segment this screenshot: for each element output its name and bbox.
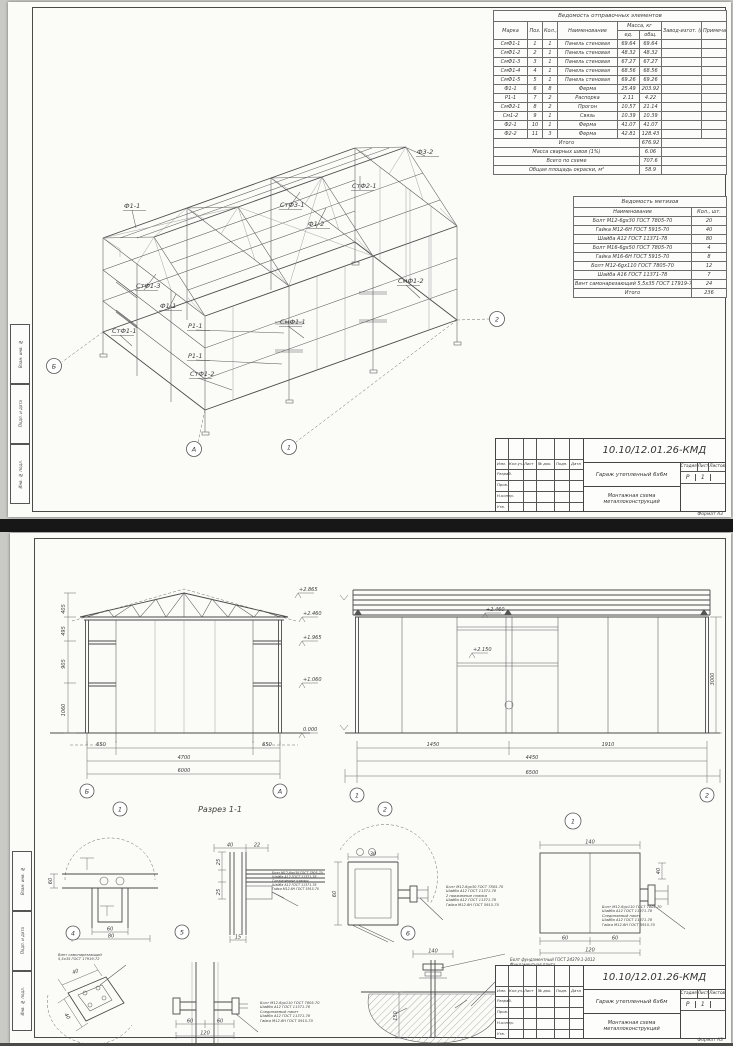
- svg-text:+1.965: +1.965: [303, 635, 322, 641]
- spec-table-row: СмФ1-221Панель стеновая48.3248.32: [494, 49, 727, 58]
- hardware-table: Ведомость метизов Наименование Кол., шт.…: [573, 196, 727, 298]
- svg-text:80: 80: [108, 934, 114, 940]
- hardware-total-row: Итого236: [574, 289, 727, 298]
- detail-1-notes: Болт М12-6gх110 ГОСТ 7805-70Шайба А12 ГО…: [602, 905, 707, 927]
- note-line: Гайка М12-6Н ГОСТ 5915-70: [602, 923, 707, 927]
- svg-text:1450: 1450: [427, 742, 440, 748]
- svg-text:15: 15: [235, 935, 241, 941]
- note-line: Гайка М12-6Н ГОСТ 5915-70: [446, 903, 534, 907]
- leader-line: [288, 326, 304, 338]
- svg-text:650: 650: [262, 742, 272, 748]
- svg-text:5: 5: [180, 929, 184, 937]
- hardware-table-row: Болт М12-6gх30 ГОСТ 7805-7020: [574, 217, 727, 226]
- element-mark-label: Ф1-1: [124, 202, 140, 210]
- section-view-1-1: 405 495 905 1060 +2.865 +2.460 +1.965 +1…: [50, 587, 322, 816]
- element-mark-label: СмФ1-1: [280, 318, 306, 326]
- svg-text:+2.150: +2.150: [473, 647, 492, 653]
- drawing-name: Монтажная схема металлоконструкций: [584, 487, 680, 511]
- hardware-table-row: Гайка М16-6Н ГОСТ 5915-708: [574, 253, 727, 262]
- col-mass-ed: ед.: [618, 31, 640, 40]
- svg-text:405: 405: [61, 604, 67, 614]
- svg-text:30: 30: [370, 852, 376, 858]
- svg-text:0.000: 0.000: [303, 727, 317, 733]
- hardware-table-row: Гайка М12-6Н ГОСТ 5915-7040: [574, 226, 727, 235]
- tb-podp: Подп.: [556, 461, 568, 466]
- axis-bubble-label: 1: [287, 444, 291, 452]
- format-note: Формат А3: [697, 512, 723, 517]
- svg-text:120: 120: [200, 1031, 210, 1037]
- side-elevation-view: +2.460 +2.150 3000 1450 1910 4450 6500 1…: [340, 590, 722, 816]
- sheet-number: 1: [696, 474, 711, 481]
- spec-summary-row: Всего по схеме707.6: [494, 157, 727, 166]
- svg-text:40: 40: [72, 968, 80, 976]
- document-number: 10.10/12.01.26-КМД: [584, 439, 725, 463]
- tb-role-prov: Пров.: [497, 482, 508, 487]
- spec-table-row: Ф2-1101Ферма41.0741.07: [494, 121, 727, 130]
- svg-text:+2.460: +2.460: [486, 607, 505, 613]
- svg-text:А: А: [277, 788, 282, 796]
- spec-table-row: СмФ1-441Панель стеновая68.5668.56: [494, 67, 727, 76]
- title-block-sheet2: Изм. Кол.уч. Лист № док. Подп. Дата Разр…: [495, 965, 726, 1039]
- axis-bubble-label: 2: [495, 316, 499, 324]
- sheet-label: Лист: [698, 463, 710, 471]
- svg-text:120: 120: [585, 948, 595, 954]
- hardware-table-title: Ведомость метизов: [574, 197, 727, 208]
- col-mass-total: общ.: [640, 31, 662, 40]
- spec-table-title: Ведомость отправочных элементов: [494, 11, 727, 22]
- hardware-table-row: Винт самонарезающий 5,5х35 ГОСТ 17919-72…: [574, 280, 727, 289]
- detail-5-notes: Болт М12-6gх30 ГОСТ 7805-70Шайба А12 ГОС…: [272, 871, 328, 891]
- svg-text:1910: 1910: [602, 742, 615, 748]
- element-mark-label: Ф3-2: [417, 148, 433, 156]
- sheet-2-sections-details: 405 495 905 1060 +2.865 +2.460 +1.965 +1…: [10, 533, 731, 1043]
- element-mark-label: Ф1-1: [160, 302, 176, 310]
- svg-text:150: 150: [393, 1011, 399, 1021]
- detail-anchor-bolt: 140 150: [361, 949, 507, 1044]
- svg-text:60: 60: [187, 1019, 193, 1025]
- svg-text:60: 60: [217, 1019, 223, 1025]
- element-mark-label: СмФ1-2: [398, 277, 424, 285]
- detail-bolt-package: 60 60 120: [173, 962, 258, 1043]
- svg-text:140: 140: [585, 840, 595, 846]
- element-mark-label: Р1-1: [188, 352, 203, 360]
- svg-text:6: 6: [406, 930, 410, 938]
- margin-stamps-sheet2: Взам. инв. № Подп. и дата Инв. № подл.: [12, 851, 32, 1031]
- svg-text:Б: Б: [85, 788, 90, 796]
- axis-bubble-label: Б: [52, 363, 57, 371]
- spec-table-row: Р1-172Распорка2.114.22: [494, 94, 727, 103]
- col-marka: Марка: [494, 22, 528, 40]
- hardware-table-row: Шайба А12 ГОСТ 11371-7880: [574, 235, 727, 244]
- spec-table-row: СмФ2-182Прогон10.5721.14: [494, 103, 727, 112]
- hw-col-name: Наименование: [574, 208, 692, 217]
- svg-text:6500: 6500: [526, 770, 539, 776]
- svg-text:1: 1: [118, 806, 122, 814]
- leader-line: [198, 378, 232, 390]
- svg-text:+2.460: +2.460: [303, 611, 322, 617]
- tb-role-razrab: Разраб.: [497, 471, 512, 476]
- hardware-table-row: Болт М12-6gх110 ГОСТ 7805-7012: [574, 262, 727, 271]
- note-line: 5,5х35 ГОСТ 17919-72: [58, 957, 148, 961]
- svg-text:60: 60: [332, 891, 338, 897]
- elev-marks-left-view: +2.865 +2.460 +1.965 +1.060 0.000: [295, 587, 322, 738]
- spec-table-row: СмФ1-111Панель стеновая69.6469.64: [494, 40, 727, 49]
- title-block-sheet1: Изм. Кол.уч. Лист № док. Подп. Дата Разр…: [495, 438, 726, 512]
- hardware-table-row: Шайба А16 ГОСТ 11371-787: [574, 271, 727, 280]
- tb-list: Лист: [524, 461, 534, 466]
- svg-text:60: 60: [107, 927, 113, 933]
- sheet-divider: [0, 519, 733, 532]
- svg-text:2: 2: [705, 792, 709, 800]
- tb-koluch: Кол.уч.: [509, 461, 523, 466]
- drawing-name-2: Монтажная схема металлоконструкций: [584, 1014, 680, 1038]
- spec-table-row: Ф2-2113Ферма42.81128.43: [494, 130, 727, 139]
- col-name: Наименование: [558, 22, 618, 40]
- project-name: Гараж утепленный 6х6м: [584, 463, 680, 487]
- tb-role-utv: Утв.: [497, 504, 505, 509]
- sheets-label: Листов: [709, 463, 725, 471]
- stamp-inv: Инв. № подл.: [18, 460, 23, 488]
- detail-5: 40 22 25 25 15: [214, 843, 325, 944]
- svg-text:1060: 1060: [61, 704, 67, 717]
- detail-1: 140 60 60 120 40: [540, 840, 685, 957]
- stamp-podp: Подп. и дата: [18, 400, 23, 427]
- spec-summary-row: Масса сварных швов (1%)6.06: [494, 148, 727, 157]
- svg-text:22: 22: [254, 843, 260, 849]
- element-mark-label: СтФ1-2: [190, 370, 215, 378]
- stamp-vzam: Взам. инв. №: [18, 340, 23, 368]
- section-title: Разрез 1-1: [198, 805, 242, 814]
- element-mark-label: СтФ2-1: [352, 182, 377, 190]
- svg-text:1: 1: [571, 818, 575, 826]
- col-poz: Поз.: [528, 22, 543, 40]
- screw-detail-note: Винт самонарезающий5,5х35 ГОСТ 17919-72: [58, 953, 148, 962]
- hardware-table-row: Болт М16-6gх50 ГОСТ 7805-704: [574, 244, 727, 253]
- margin-stamps-sheet1: Взам. инв. № Подп. и дата Инв. № подл.: [10, 324, 30, 504]
- svg-text:4700: 4700: [178, 755, 191, 761]
- element-mark-label: СтФ1-1: [112, 327, 137, 335]
- element-mark-label: СтФ3-1: [280, 201, 305, 209]
- svg-text:495: 495: [61, 626, 67, 636]
- stage-label: Стадия: [681, 463, 698, 471]
- note-line: Гайка М12-6Н ГОСТ 5915-70: [260, 1019, 355, 1023]
- svg-text:40: 40: [227, 843, 233, 849]
- svg-text:40: 40: [656, 868, 662, 874]
- drawing-page: { "colors": { "sheet": "#fbfbf8", "line"…: [0, 0, 733, 1046]
- svg-text:60: 60: [562, 936, 568, 942]
- svg-text:4450: 4450: [526, 755, 539, 761]
- tb-data: Дата: [571, 461, 581, 466]
- col-note: Примечание: [702, 22, 727, 40]
- spec-summary-row: Итого676.92: [494, 139, 727, 148]
- shipping-elements-table: Ведомость отправочных элементов Марка По…: [493, 10, 727, 175]
- leader-line: [132, 210, 136, 228]
- svg-text:2: 2: [383, 806, 387, 814]
- spec-table-row: Ф1-168Ферма25.49203.92: [494, 85, 727, 94]
- svg-text:25: 25: [216, 889, 222, 895]
- spec-table-row: СмФ1-331Панель стеновая67.2767.27: [494, 58, 727, 67]
- svg-text:6000: 6000: [178, 768, 191, 774]
- svg-text:+1.060: +1.060: [303, 677, 322, 683]
- svg-text:60: 60: [48, 878, 54, 884]
- svg-text:+2.865: +2.865: [299, 587, 318, 593]
- svg-text:40: 40: [63, 1012, 72, 1021]
- svg-text:25: 25: [216, 859, 222, 865]
- element-mark-label: Р1-1: [188, 322, 203, 330]
- svg-text:4: 4: [71, 930, 75, 938]
- axis-bubble-label: А: [191, 446, 196, 454]
- hw-col-qty: Кол., шт.: [692, 208, 727, 217]
- spec-summary-row: Общая площадь окраски, м²58.9: [494, 166, 727, 175]
- svg-text:905: 905: [61, 659, 67, 669]
- title-block-revision-grid: Изм. Кол.уч. Лист № док. Подп. Дата Разр…: [496, 439, 584, 511]
- tb-dok: № док.: [538, 461, 552, 466]
- spec-table-row: СмФ1-551Панель стеновая69.2669.26: [494, 76, 727, 85]
- detail-6-notes: Болт М12-6gх30 ГОСТ 7805-70Шайба А12 ГОС…: [446, 885, 534, 907]
- sheet-1-assembly-scheme: БА12 Ф3-2СтФ2-1СтФ3-1Ф1-2Ф1-1СтФ1-3Ф1-1С…: [8, 2, 731, 517]
- stage-value: Р: [681, 474, 696, 481]
- svg-text:140: 140: [428, 949, 438, 955]
- detail-4: 60 80 60: [48, 838, 158, 942]
- element-mark-label: Ф1-2: [308, 220, 324, 228]
- svg-text:650: 650: [96, 742, 106, 748]
- svg-text:60: 60: [612, 936, 618, 942]
- tb-izm: Изм.: [497, 461, 506, 466]
- project-name-2: Гараж утепленный 6х6м: [584, 990, 680, 1014]
- note-line: Гайка М12-6Н ГОСТ 5915-70: [272, 887, 328, 891]
- leader-line: [120, 335, 132, 346]
- document-number-2: 10.10/12.01.26-КМД: [584, 966, 725, 990]
- detail-selftapping-screw: 40 40: [47, 964, 132, 1043]
- col-kol: Кол., шт.: [543, 22, 558, 40]
- col-zavod: Завод-изгот. (№ заказа): [662, 22, 702, 40]
- element-mark-label: СтФ1-3: [136, 282, 161, 290]
- title-block-revision-grid-2: Изм. Кол.уч. Лист № док. Подп. Дата Разр…: [496, 966, 584, 1038]
- bolt-package-notes: Болт М12-6gх110 ГОСТ 7805-70Шайба А12 ГО…: [260, 1001, 355, 1023]
- svg-text:1: 1: [355, 792, 359, 800]
- tb-role-nkontr: Н.контр.: [497, 493, 514, 498]
- detail-6: 60 30: [332, 825, 443, 942]
- svg-text:3000: 3000: [710, 673, 716, 686]
- leader-line: [406, 285, 420, 298]
- spec-table-row: См1-291Связь10.3910.39: [494, 112, 727, 121]
- col-mass: Масса, кг: [618, 22, 662, 31]
